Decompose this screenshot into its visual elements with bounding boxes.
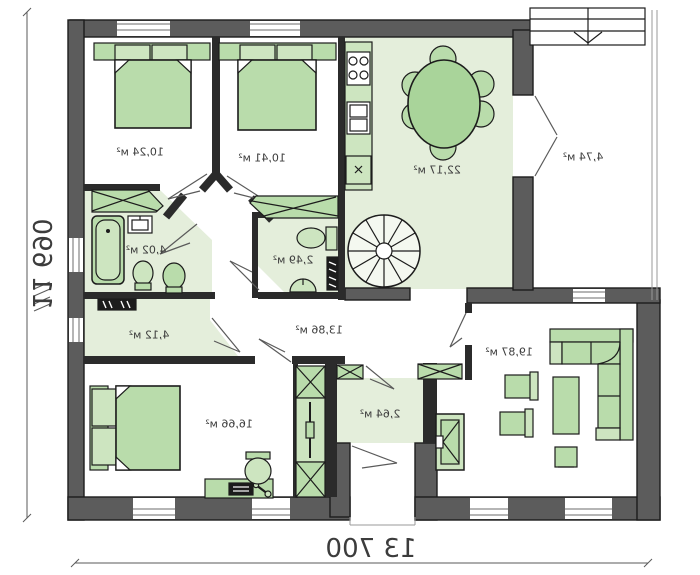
room-area-label: 10,41 м² [238,152,286,165]
partition-kitchen [338,37,345,300]
armchair-icon [500,409,533,437]
wardrobe-icon [418,364,462,379]
fireplace-icon [436,414,464,470]
room-area-label: 22,17 м² [413,164,461,177]
floor-plan: 10,24 м² 10,41 м² 22,17 м² 4,74 м² 4,02 … [0,0,700,575]
stove-icon [347,52,370,85]
door-entry-south [573,289,605,302]
armchair-icon [505,372,538,400]
door-kitchen-entry-double [535,96,557,176]
room-area-label: 2,49 м² [273,254,314,267]
chair-icon [245,452,271,484]
wall-kitchen-east-lower [513,177,533,290]
partition-wc-bottom [258,292,345,299]
room-area-label: 4,74 м² [563,151,604,164]
door-front [352,446,397,468]
bidet-icon [163,263,185,293]
room-area-label: 4,12 м² [129,329,170,342]
partition-bathroom-bottom [84,292,215,299]
bathtub-icon [92,216,124,284]
kitchen-counter-icon [345,42,372,190]
toilet-icon [133,261,153,290]
wardrobe-icon [250,196,338,218]
room-area-label: 16,66 м² [205,418,253,431]
room-area-label: 2,64 м² [360,408,401,421]
window-left-1 [69,238,83,272]
room-area-label: 19,87 м² [485,346,533,359]
room-area-label: 13,86 м² [295,324,343,337]
door-bedroom3 [259,339,291,362]
room-area-label: 10,24 м² [116,146,164,159]
wall-sink-icon [128,216,152,233]
double-bed-icon [94,43,210,128]
radiator-icon [98,299,136,310]
radiator-icon [327,257,338,290]
partition-living-door-bottom [465,345,472,380]
partition-bedroom3-top-b [292,356,345,364]
entry-steps-icon [530,8,645,45]
window-top-2 [250,21,300,36]
room-area-label: 4,02 м² [126,244,167,257]
overall-width-label: 13 700 [326,534,417,564]
wall-kitchen-south-right [467,288,660,303]
floor-plan-drawing [0,0,700,575]
overall-height-label: 11 690 [26,219,56,310]
wardrobe-icon [337,365,363,379]
closet-column [296,366,325,497]
double-bed-icon [219,43,336,130]
double-bed-icon [90,386,180,470]
coffee-table-icon [553,377,579,434]
wall-kitchen-south-left [345,288,410,300]
wall-bottom-right-wing [415,497,660,520]
partition-closet-right [325,364,337,497]
window-left-2 [69,318,83,342]
partition-wc-left [252,212,258,298]
stool-icon [555,447,577,467]
door-living-room [450,313,466,347]
partition-living-door-top [465,303,472,313]
partition-bedroom3-top-a [84,356,255,364]
toilet-icon [297,227,337,250]
spiral-stair-icon [348,215,420,287]
wall-right [637,300,660,520]
wall-bottom-left-wing [68,497,350,520]
window-top-1 [117,21,170,36]
